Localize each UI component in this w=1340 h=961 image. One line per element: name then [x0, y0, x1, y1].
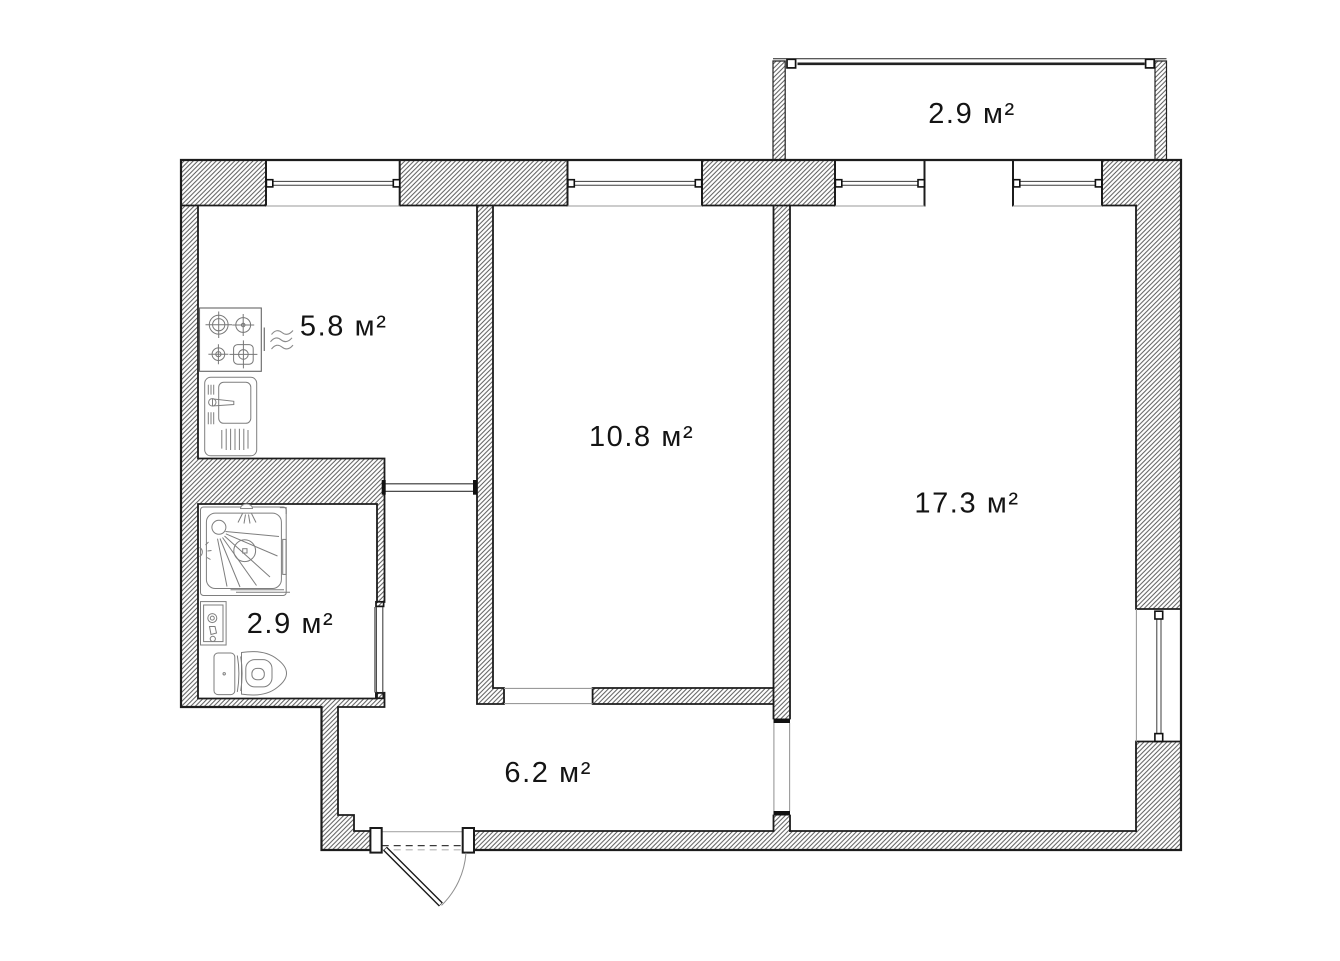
- svg-text:2.9 м²: 2.9 м²: [928, 98, 1016, 130]
- svg-text:6.2 м²: 6.2 м²: [504, 757, 592, 789]
- svg-text:17.3 м²: 17.3 м²: [914, 487, 1019, 519]
- svg-text:5.8 м²: 5.8 м²: [300, 311, 388, 343]
- svg-text:2.9 м²: 2.9 м²: [247, 608, 335, 640]
- svg-text:10.8 м²: 10.8 м²: [589, 421, 694, 453]
